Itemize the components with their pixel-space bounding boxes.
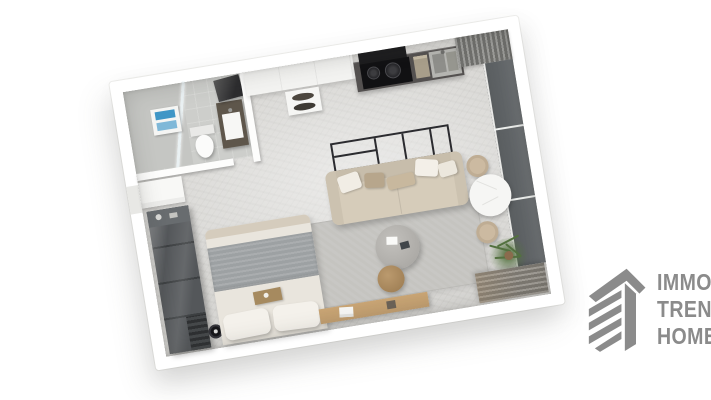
wardrobe-ladder <box>186 314 211 351</box>
render-canvas: IMMO TREND HOME <box>0 0 711 400</box>
floor-plan <box>109 15 565 370</box>
brand-line-1: IMMO <box>657 269 711 296</box>
entry-closet <box>138 176 186 209</box>
wall-shelf <box>285 87 322 116</box>
apartment-floor <box>123 29 551 357</box>
sofa-pillow-tan <box>364 172 385 188</box>
sofa-pillow-white <box>415 159 439 177</box>
brand-wordmark: IMMO TREND HOME <box>657 269 711 350</box>
table-tray <box>386 237 397 245</box>
sideboard-book <box>339 307 354 318</box>
brand-line-2: TREND <box>657 296 711 323</box>
brand-logo: IMMO TREND HOME <box>588 264 711 354</box>
brand-line-3: HOME <box>657 323 711 350</box>
sideboard-decor <box>386 300 396 309</box>
building-logo-icon <box>588 264 648 354</box>
